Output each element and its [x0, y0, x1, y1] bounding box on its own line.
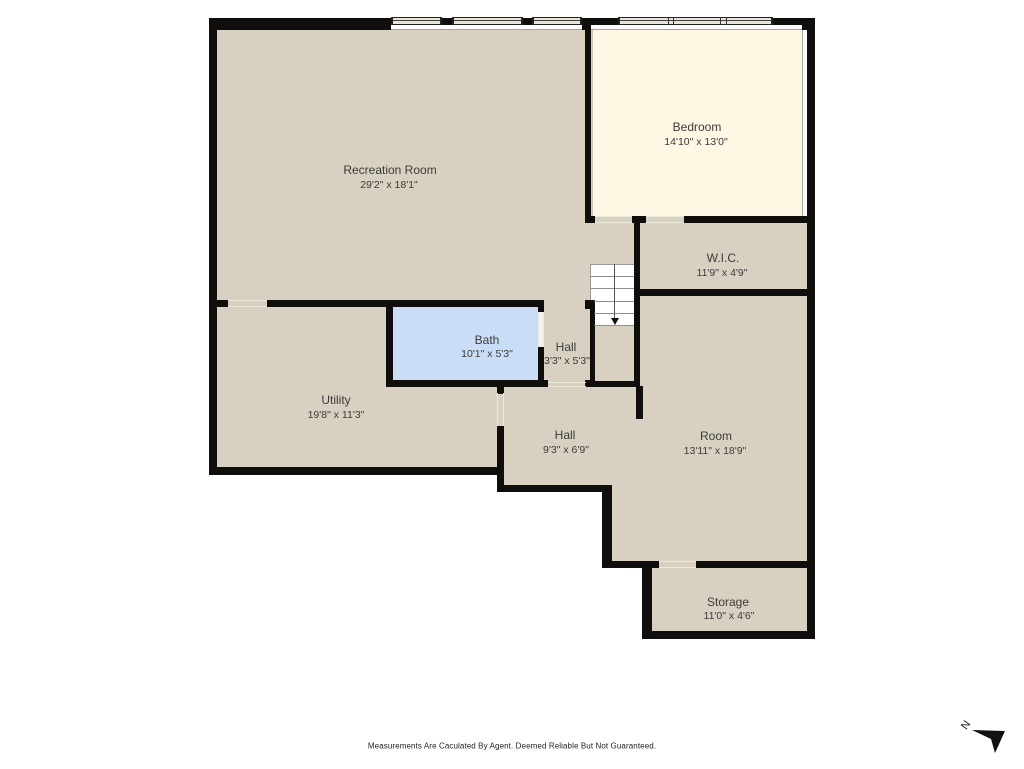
- svg-text:N: N: [959, 719, 973, 732]
